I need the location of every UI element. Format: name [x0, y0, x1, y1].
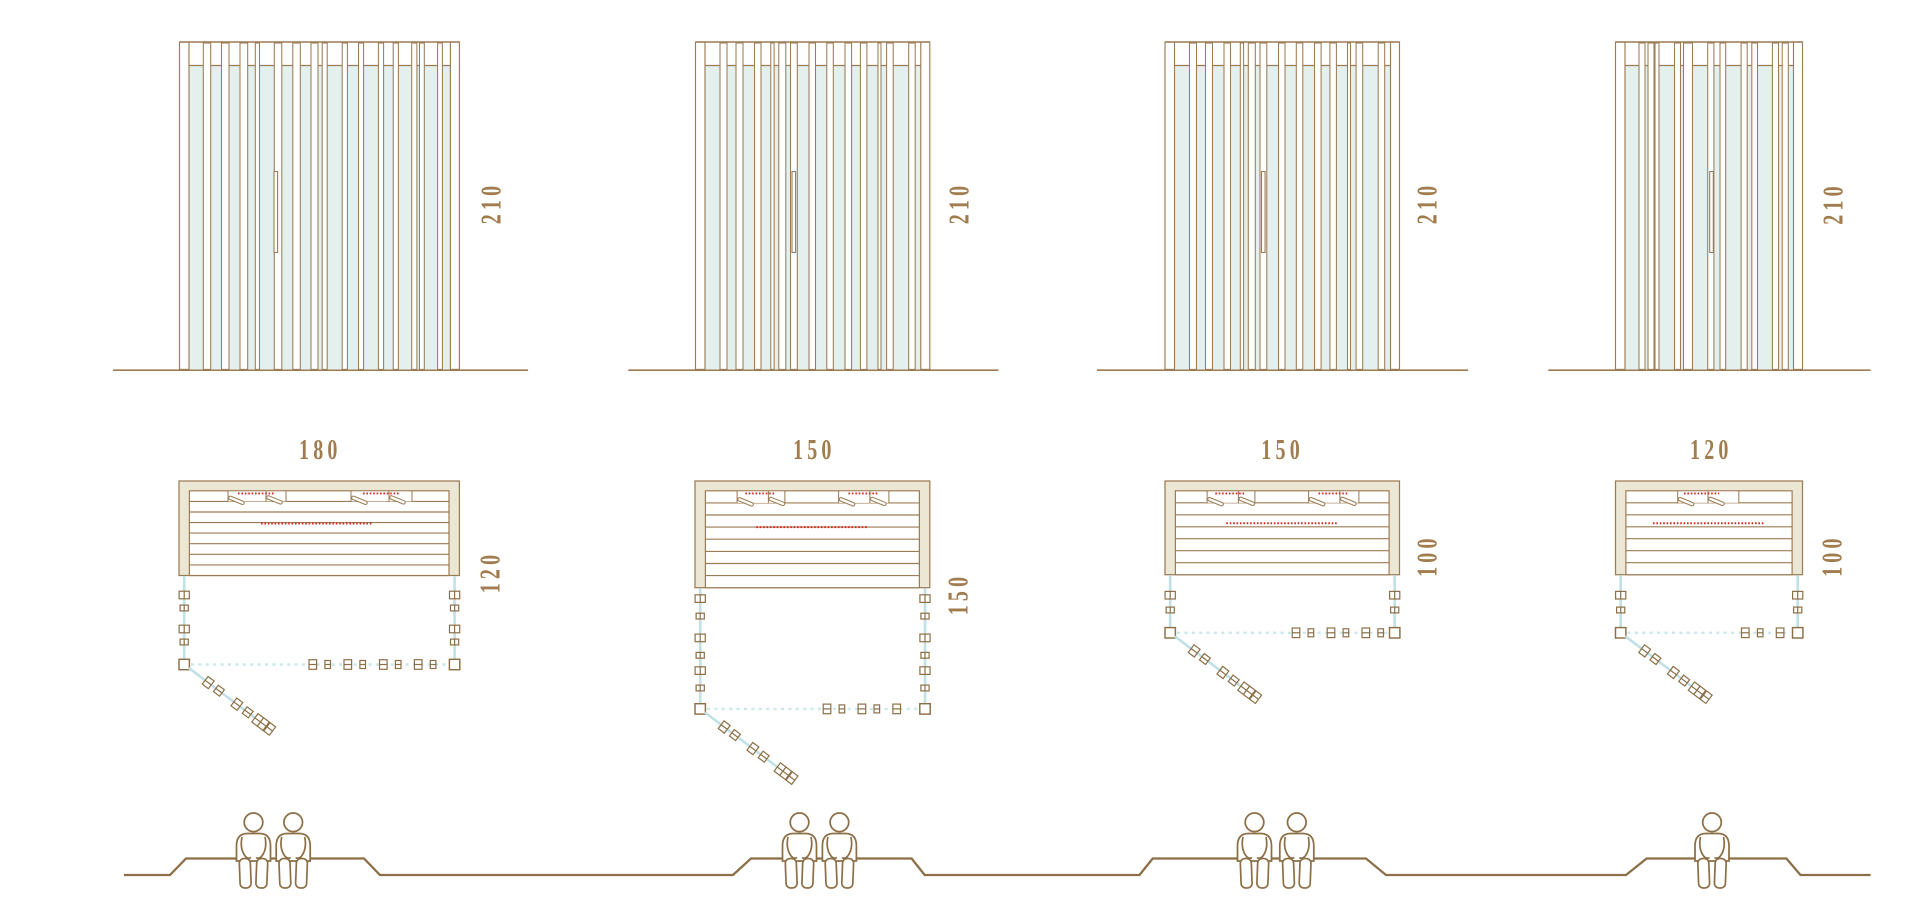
svg-text:150: 150 — [1261, 435, 1304, 466]
svg-text:150: 150 — [793, 435, 836, 466]
svg-text:210: 210 — [944, 182, 975, 225]
svg-text:210: 210 — [1412, 182, 1443, 225]
svg-text:210: 210 — [1818, 182, 1849, 225]
svg-text:100: 100 — [1817, 534, 1848, 577]
svg-text:150: 150 — [943, 573, 974, 616]
svg-text:120: 120 — [1690, 435, 1733, 466]
svg-text:120: 120 — [475, 551, 506, 594]
svg-text:210: 210 — [476, 182, 507, 225]
svg-text:100: 100 — [1412, 534, 1443, 577]
svg-text:180: 180 — [299, 435, 342, 466]
